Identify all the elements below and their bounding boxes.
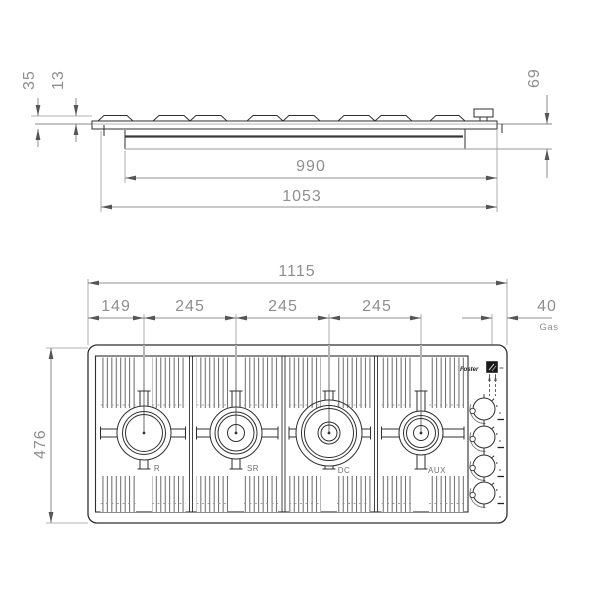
dim-990-label: 990 (296, 158, 326, 175)
dim-13-label: 13 (50, 70, 67, 90)
dim-shallow-depth: 35 (21, 70, 40, 147)
plan-view: 1115 149 245 245 245 40 Gas (32, 263, 558, 523)
burner-label-aux: AUX (428, 466, 446, 475)
dim-245-label-3: 245 (362, 298, 392, 315)
dim-149-label: 149 (101, 298, 131, 315)
technical-drawing-page: 35 13 69 990 1053 (0, 0, 600, 600)
hob-slab-profile (92, 121, 497, 129)
knob-profile (474, 109, 493, 121)
dim-overall-depth: 476 (32, 348, 53, 523)
dim-gas-offset: 40 Gas (462, 298, 558, 333)
grate-caps-profile (98, 116, 465, 122)
dim-body-width: 990 (125, 158, 497, 180)
brand-logo: Foster (460, 367, 479, 373)
gas-hob-drawing: 35 13 69 990 1053 (0, 0, 600, 600)
dim-1053-label: 1053 (282, 188, 322, 205)
gas-label: Gas (540, 322, 559, 333)
burner-label-dc: DC (338, 466, 351, 475)
dim-overall-width-plan: 1115 (88, 263, 507, 285)
dim-lip-height: 13 (50, 70, 78, 142)
side-view: 35 13 69 990 1053 (21, 68, 552, 212)
burner-label-sr: SR (247, 464, 259, 473)
dim-245-label-2: 245 (268, 298, 298, 315)
dim-burner-spacing: 149 245 245 245 (88, 298, 421, 320)
dim-35-label: 35 (21, 70, 38, 90)
dim-69-label: 69 (526, 68, 543, 88)
dim-245-label-1: 245 (175, 298, 205, 315)
dim-total-depth: 69 (526, 68, 549, 178)
dim-40-label: 40 (537, 298, 557, 315)
dim-overall-width-side: 1053 (101, 188, 497, 209)
dim-476-label: 476 (32, 429, 49, 459)
burner-label-r: R (154, 464, 160, 473)
dim-1115-label: 1115 (278, 263, 315, 280)
